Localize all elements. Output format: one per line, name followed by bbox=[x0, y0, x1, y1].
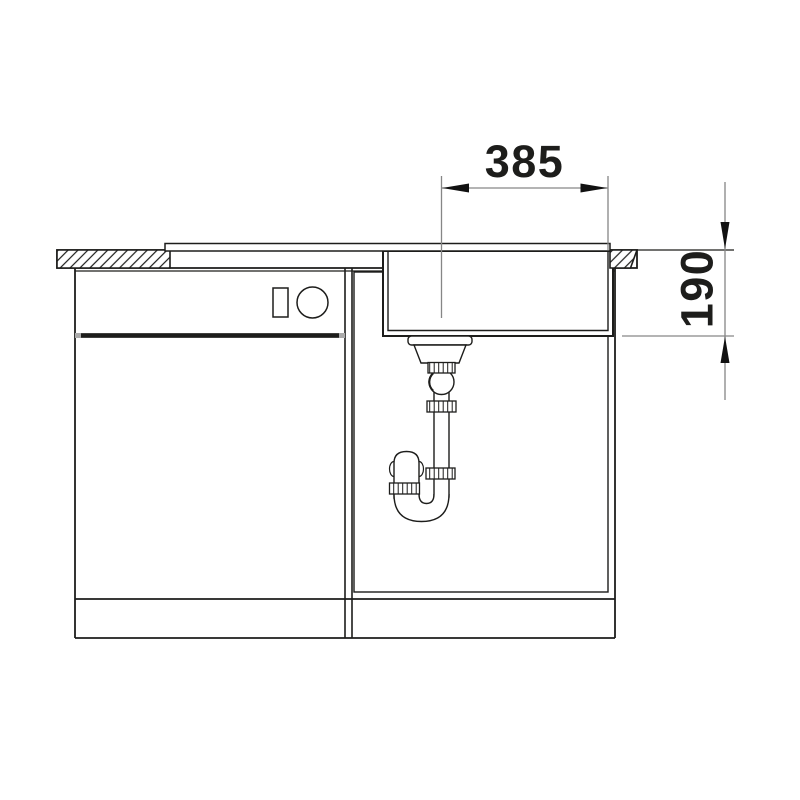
nut-tailpipe-upper bbox=[427, 401, 456, 412]
appliance-front bbox=[75, 287, 345, 336]
nut-trap-tube bbox=[390, 483, 420, 494]
control-panel-rect bbox=[273, 288, 288, 317]
technical-drawing-canvas: 385 190 bbox=[0, 0, 800, 800]
trap-u-bend-inner bbox=[419, 494, 434, 504]
trap-u-bend-fill bbox=[394, 494, 449, 522]
width-value: 385 bbox=[485, 136, 565, 187]
strainer-body bbox=[414, 345, 466, 363]
depth-arrow-top bbox=[721, 222, 730, 249]
sink-basin bbox=[383, 251, 613, 336]
drain-flange bbox=[408, 336, 472, 345]
basin-outer-wall bbox=[383, 251, 613, 336]
control-knob-circle bbox=[297, 287, 328, 318]
depth-value: 190 bbox=[672, 249, 723, 329]
width-arrow-right bbox=[581, 184, 608, 193]
dimension-depth: 190 bbox=[622, 182, 734, 400]
nut-tailpipe-lower bbox=[426, 468, 455, 479]
sink-rim bbox=[165, 244, 610, 252]
width-arrow-left bbox=[442, 184, 469, 193]
sink-installation-drawing: 385 190 bbox=[0, 0, 800, 800]
depth-arrow-bottom bbox=[721, 337, 730, 364]
hatch-block-left bbox=[57, 250, 170, 268]
drain-assembly bbox=[390, 336, 473, 522]
nut-strainer bbox=[428, 363, 455, 374]
